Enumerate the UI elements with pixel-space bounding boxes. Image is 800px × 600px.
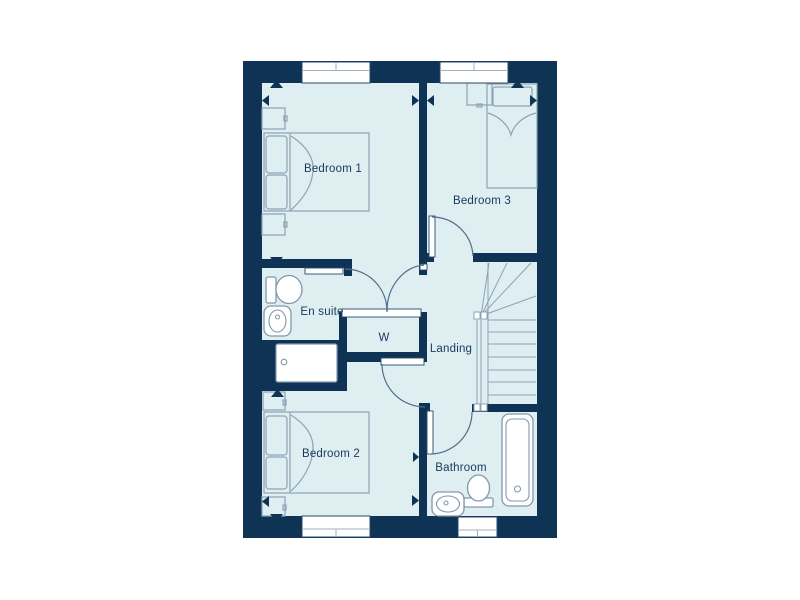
bedroom2-window <box>302 516 370 537</box>
label-bathroom: Bathroom <box>435 462 486 474</box>
label-bedroom-1: Bedroom 1 <box>304 163 362 175</box>
label-en-suite: En suite <box>300 306 343 318</box>
bathroom-basin <box>432 492 464 516</box>
wall-bed2-bathroom <box>419 404 427 516</box>
bathroom-bath <box>502 414 533 506</box>
bedroom3-door-leaf <box>429 216 435 257</box>
bedroom2-door-leaf <box>381 358 424 365</box>
wall-wardrobe-right <box>419 312 427 353</box>
wall-bed1-bed3 <box>419 83 427 275</box>
newel-post <box>481 312 487 319</box>
ensuite-door-leaf <box>305 268 343 274</box>
ensuite-shower-tray <box>276 344 337 382</box>
floorplan-svg: Bedroom 1 Bedroom 3 En suite W Landing B… <box>0 0 800 600</box>
wall-bed1-ensuite <box>258 259 352 268</box>
bathroom-door-leaf <box>427 411 433 454</box>
label-bedroom-3: Bedroom 3 <box>453 195 511 207</box>
label-wardrobe: W <box>378 332 389 344</box>
ensuite-toilet <box>266 276 302 304</box>
bathroom-window <box>458 517 497 537</box>
newel-post <box>474 312 480 319</box>
newel-post <box>481 404 487 411</box>
ensuite-basin <box>264 306 291 336</box>
wardrobe-front <box>342 309 421 317</box>
bedroom3-window <box>440 62 508 83</box>
wall-stairs-top <box>473 253 537 262</box>
label-bedroom-2: Bedroom 2 <box>302 448 360 460</box>
bedroom1-window <box>302 62 370 83</box>
label-landing: Landing <box>430 343 472 355</box>
floorplan-canvas: Bedroom 1 Bedroom 3 En suite W Landing B… <box>0 0 800 600</box>
newel-post <box>474 404 480 411</box>
